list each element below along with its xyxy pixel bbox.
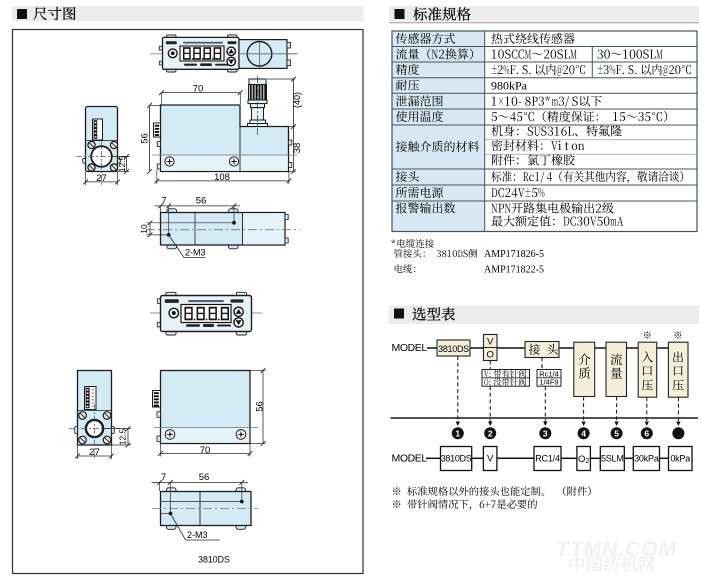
svg-text:2: 2 — [488, 429, 493, 439]
svg-text:70: 70 — [200, 445, 211, 456]
svg-text:5SLM: 5SLM — [601, 454, 624, 464]
svg-text:O: O — [487, 350, 494, 361]
svg-text:7: 7 — [161, 195, 166, 206]
svg-text:27: 27 — [96, 173, 107, 184]
svg-text:V: V — [487, 454, 494, 465]
svg-text:0kPa: 0kPa — [670, 454, 690, 464]
svg-text:56: 56 — [199, 472, 210, 483]
svg-text:7: 7 — [161, 472, 166, 483]
svg-text:3810DS: 3810DS — [441, 454, 472, 464]
svg-text:3810DS: 3810DS — [198, 555, 230, 565]
svg-text:56: 56 — [255, 401, 266, 412]
svg-text:(40): (40) — [292, 92, 302, 108]
svg-text:27: 27 — [89, 447, 100, 458]
svg-text:6: 6 — [644, 429, 649, 439]
svg-text:AMP171826-5: AMP171826-5 — [484, 249, 544, 260]
svg-text:5: 5 — [614, 429, 619, 439]
svg-text:4: 4 — [581, 429, 586, 439]
svg-text:MODEL: MODEL — [392, 453, 428, 465]
svg-text:12.5: 12.5 — [117, 155, 127, 172]
svg-text:MODEL: MODEL — [392, 342, 428, 354]
svg-text:108: 108 — [214, 172, 230, 183]
svg-text:30kPa: 30kPa — [634, 454, 659, 464]
svg-text:1/4F9: 1/4F9 — [539, 378, 558, 387]
svg-text:2-M3: 2-M3 — [187, 530, 208, 540]
svg-text:56: 56 — [139, 133, 150, 144]
svg-text:1: 1 — [455, 429, 460, 439]
svg-text:3810DS: 3810DS — [438, 344, 469, 354]
svg-text:38: 38 — [292, 143, 303, 154]
svg-text:3: 3 — [543, 429, 548, 439]
svg-text:V: V — [487, 337, 494, 348]
svg-text:980kPa: 980kPa — [491, 79, 528, 93]
svg-text:70: 70 — [193, 84, 204, 95]
svg-text:12.5: 12.5 — [117, 428, 127, 445]
svg-text:2-M3: 2-M3 — [185, 248, 206, 258]
svg-text:56: 56 — [196, 195, 207, 206]
svg-text:RC1/4: RC1/4 — [535, 454, 560, 464]
svg-text:10: 10 — [139, 224, 149, 234]
svg-text:TTMN.COM: TTMN.COM — [556, 538, 677, 561]
svg-text:AMP171822-5: AMP171822-5 — [484, 264, 544, 275]
